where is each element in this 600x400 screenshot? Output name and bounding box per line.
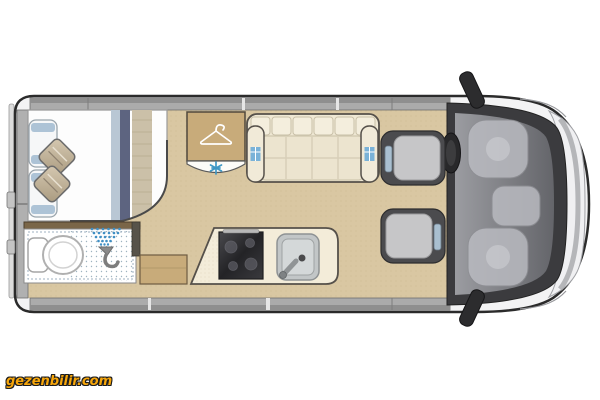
wall-top-trim (30, 98, 450, 103)
wardrobe (187, 112, 245, 161)
low-cabinet (140, 255, 187, 284)
sofa-armrest-right (361, 126, 378, 182)
bed-stripe-navy (120, 110, 130, 222)
sliding-door-seam (266, 298, 270, 310)
wall-bottom-trim (30, 305, 450, 310)
bed-runner (132, 110, 152, 222)
rear-door-trim-top (9, 104, 14, 198)
toilet (28, 236, 83, 274)
campervan-floorplan (0, 0, 600, 400)
kitchen (191, 228, 338, 284)
sliding-door-seam (148, 298, 151, 310)
sink-drain (299, 255, 306, 262)
bathroom (24, 222, 140, 283)
sofa-armrest-left (247, 126, 264, 182)
floorplan-canvas: gezenbilir.com (0, 0, 600, 400)
bed-stripe-lightblue (111, 110, 120, 222)
rear-door-hinge (7, 192, 15, 208)
pillow-band (31, 123, 55, 132)
passenger-seat (381, 209, 445, 263)
pillow-band (31, 205, 55, 214)
sofa (247, 114, 379, 182)
driver-headrest (385, 146, 392, 172)
rear-door-hinge (7, 240, 15, 254)
hob (219, 230, 263, 280)
rear-bed (28, 110, 167, 222)
passenger-headrest (434, 224, 441, 250)
sink (277, 234, 319, 280)
watermark: gezenbilir.com (6, 374, 112, 389)
hob-lid-handle (223, 230, 259, 234)
wall-gap (336, 98, 339, 110)
wall-gap (242, 98, 245, 110)
bathroom-wall-right (132, 222, 140, 256)
bathroom-wall-top (24, 222, 140, 229)
driver-seat (381, 131, 445, 185)
